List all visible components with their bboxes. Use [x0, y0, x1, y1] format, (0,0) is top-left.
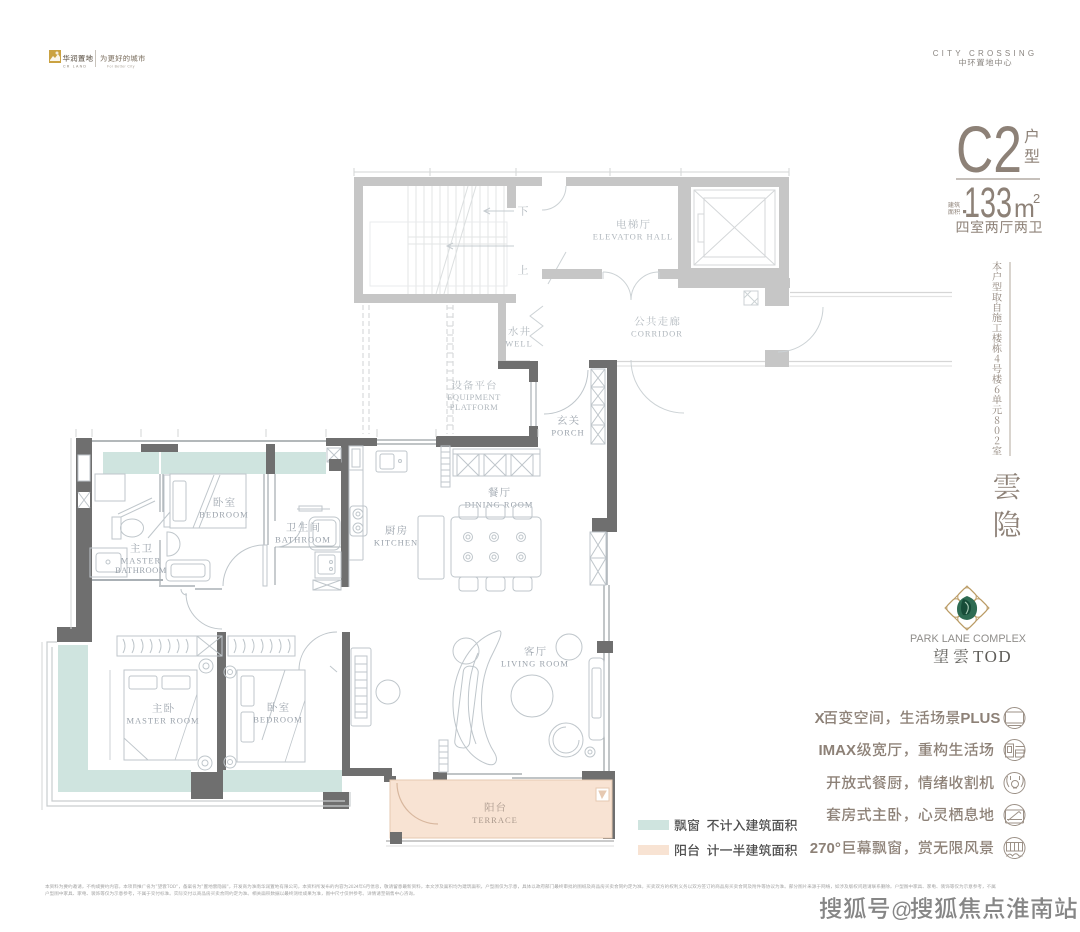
svg-text:EQUIPMENT: EQUIPMENT — [447, 392, 501, 402]
svg-text:m: m — [1014, 195, 1035, 223]
svg-text:PORCH: PORCH — [551, 428, 584, 438]
svg-text:PLATFORM: PLATFORM — [450, 402, 498, 412]
svg-text:CR LAND: CR LAND — [63, 65, 87, 69]
svg-text:ELEVATOR HALL: ELEVATOR HALL — [593, 232, 673, 242]
svg-text:For Better City: For Better City — [107, 65, 135, 69]
svg-text:TERRACE: TERRACE — [472, 815, 518, 825]
svg-text:CITY CROSSING: CITY CROSSING — [933, 49, 1038, 58]
svg-text:MASTER: MASTER — [121, 556, 161, 566]
svg-text:@: @ — [891, 899, 912, 922]
svg-text:133: 133 — [964, 179, 1012, 227]
svg-text:MASTER ROOM: MASTER ROOM — [126, 716, 199, 726]
svg-text:PARK LANE COMPLEX: PARK LANE COMPLEX — [910, 633, 1026, 645]
svg-text:PLUS: PLUS — [960, 710, 1000, 727]
svg-text:BEDROOM: BEDROOM — [199, 510, 249, 520]
svg-text:2: 2 — [1033, 191, 1040, 206]
svg-text:CORRIDOR: CORRIDOR — [631, 329, 683, 339]
svg-text:X: X — [815, 710, 825, 727]
svg-text:C2: C2 — [956, 112, 1022, 186]
svg-text:TOD: TOD — [973, 647, 1012, 666]
svg-text:LIVING ROOM: LIVING ROOM — [501, 659, 569, 669]
svg-text:KITCHEN: KITCHEN — [374, 538, 418, 548]
svg-text:WELL: WELL — [505, 339, 533, 349]
svg-text:BEDROOM: BEDROOM — [253, 715, 303, 725]
svg-text:270°: 270° — [810, 840, 841, 857]
svg-text:BATHROOM: BATHROOM — [275, 535, 331, 545]
svg-text:IMAX: IMAX — [819, 742, 861, 759]
svg-text:BATHROOM: BATHROOM — [115, 565, 167, 575]
